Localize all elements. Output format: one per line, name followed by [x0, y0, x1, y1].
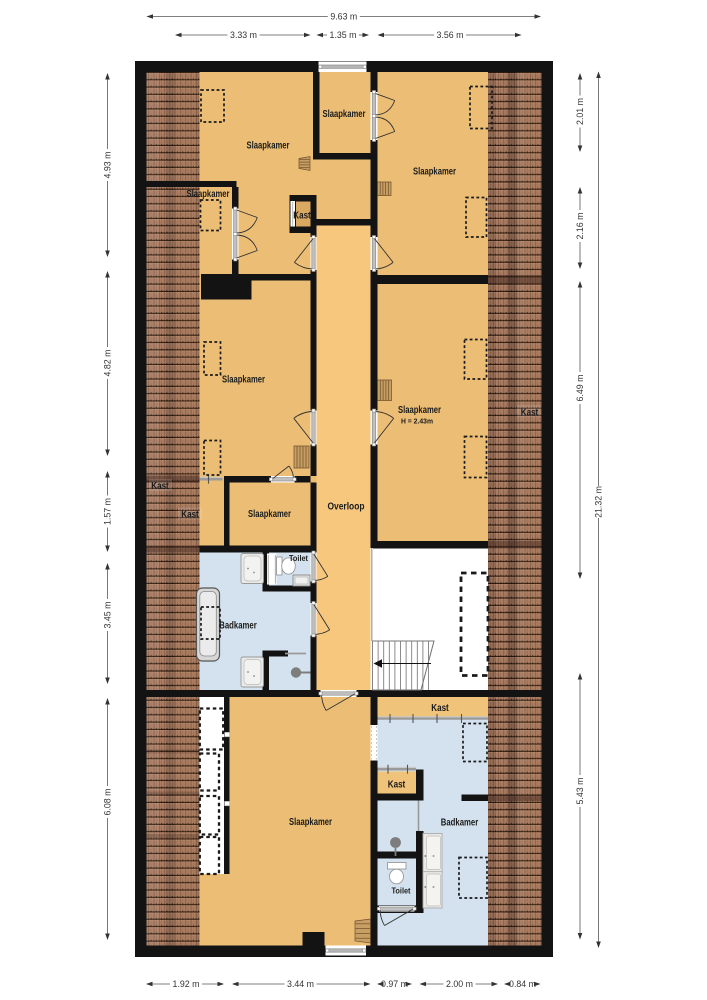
svg-text:6.08 m: 6.08 m	[103, 789, 113, 816]
svg-text:9.63 m: 9.63 m	[330, 12, 357, 22]
svg-text:Overloop: Overloop	[328, 502, 365, 513]
svg-text:3.56 m: 3.56 m	[437, 30, 464, 40]
svg-text:4.82 m: 4.82 m	[103, 350, 113, 377]
svg-text:2.16 m: 2.16 m	[575, 213, 585, 240]
svg-text:1.92 m: 1.92 m	[173, 979, 200, 989]
svg-text:Kast: Kast	[521, 408, 539, 419]
svg-text:Slaapkamer: Slaapkamer	[398, 405, 441, 416]
svg-text:Toilet: Toilet	[289, 554, 308, 563]
svg-text:Kast: Kast	[293, 211, 311, 222]
svg-text:3.45 m: 3.45 m	[103, 602, 113, 629]
svg-text:Badkamer: Badkamer	[219, 621, 257, 632]
svg-text:Kast: Kast	[151, 481, 169, 492]
svg-text:3.44 m: 3.44 m	[287, 979, 314, 989]
svg-text:Slaapkamer: Slaapkamer	[289, 817, 332, 828]
svg-text:5.43 m: 5.43 m	[575, 778, 585, 805]
svg-text:Kast: Kast	[181, 510, 199, 521]
svg-text:0.84 m: 0.84 m	[509, 979, 536, 989]
svg-text:2.01 m: 2.01 m	[575, 98, 585, 125]
svg-text:Kast: Kast	[388, 780, 406, 791]
svg-text:Slaapkamer: Slaapkamer	[247, 141, 290, 152]
svg-text:Slaapkamer: Slaapkamer	[413, 167, 456, 178]
svg-text:Slaapkamer: Slaapkamer	[323, 109, 366, 120]
svg-text:1.57 m: 1.57 m	[103, 498, 113, 525]
svg-text:6.49 m: 6.49 m	[575, 375, 585, 402]
svg-text:Kast: Kast	[431, 703, 449, 714]
svg-text:3.33 m: 3.33 m	[230, 30, 257, 40]
svg-text:Badkamer: Badkamer	[441, 818, 479, 829]
svg-text:4.93 m: 4.93 m	[103, 152, 113, 179]
svg-text:0.97 m: 0.97 m	[381, 979, 408, 989]
svg-text:1.35 m: 1.35 m	[330, 30, 357, 40]
svg-text:Slaapkamer: Slaapkamer	[187, 189, 230, 200]
svg-text:Slaapkamer: Slaapkamer	[248, 509, 291, 520]
svg-text:Toilet: Toilet	[392, 887, 411, 896]
svg-text:H = 2.43m: H = 2.43m	[401, 417, 433, 426]
svg-text:Slaapkamer: Slaapkamer	[222, 375, 265, 386]
svg-text:2.00 m: 2.00 m	[446, 979, 473, 989]
svg-text:21.32 m: 21.32 m	[594, 486, 604, 518]
